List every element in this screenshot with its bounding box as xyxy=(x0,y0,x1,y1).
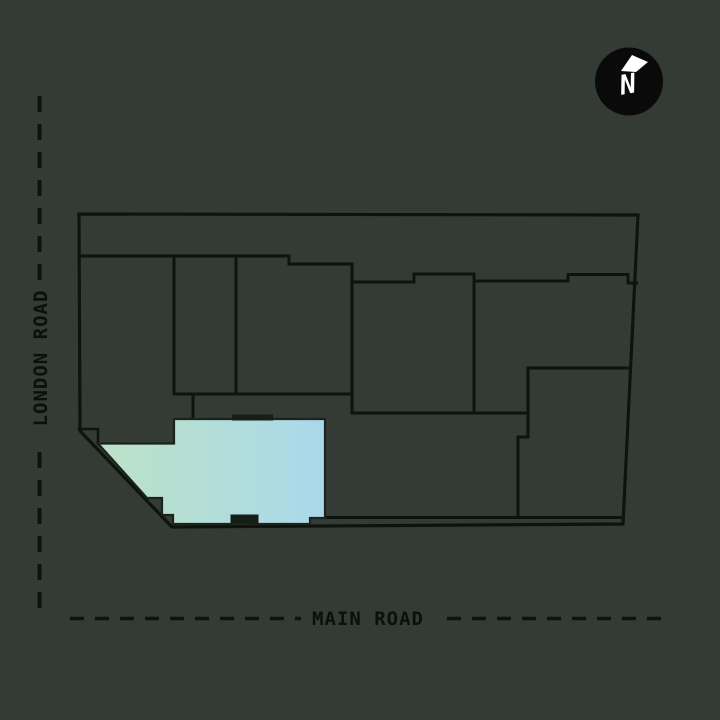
unit-entrance-top-marker xyxy=(232,415,273,421)
site-plan-page: LONDON ROAD MAIN ROAD N xyxy=(0,0,720,720)
london-road-label: LONDON ROAD xyxy=(30,290,52,427)
unit-entrance-bottom-marker xyxy=(231,515,259,525)
compass-north-icon: N xyxy=(595,48,663,116)
main-road-label: MAIN ROAD xyxy=(312,608,424,630)
site-plan: LONDON ROAD MAIN ROAD N xyxy=(0,0,720,720)
